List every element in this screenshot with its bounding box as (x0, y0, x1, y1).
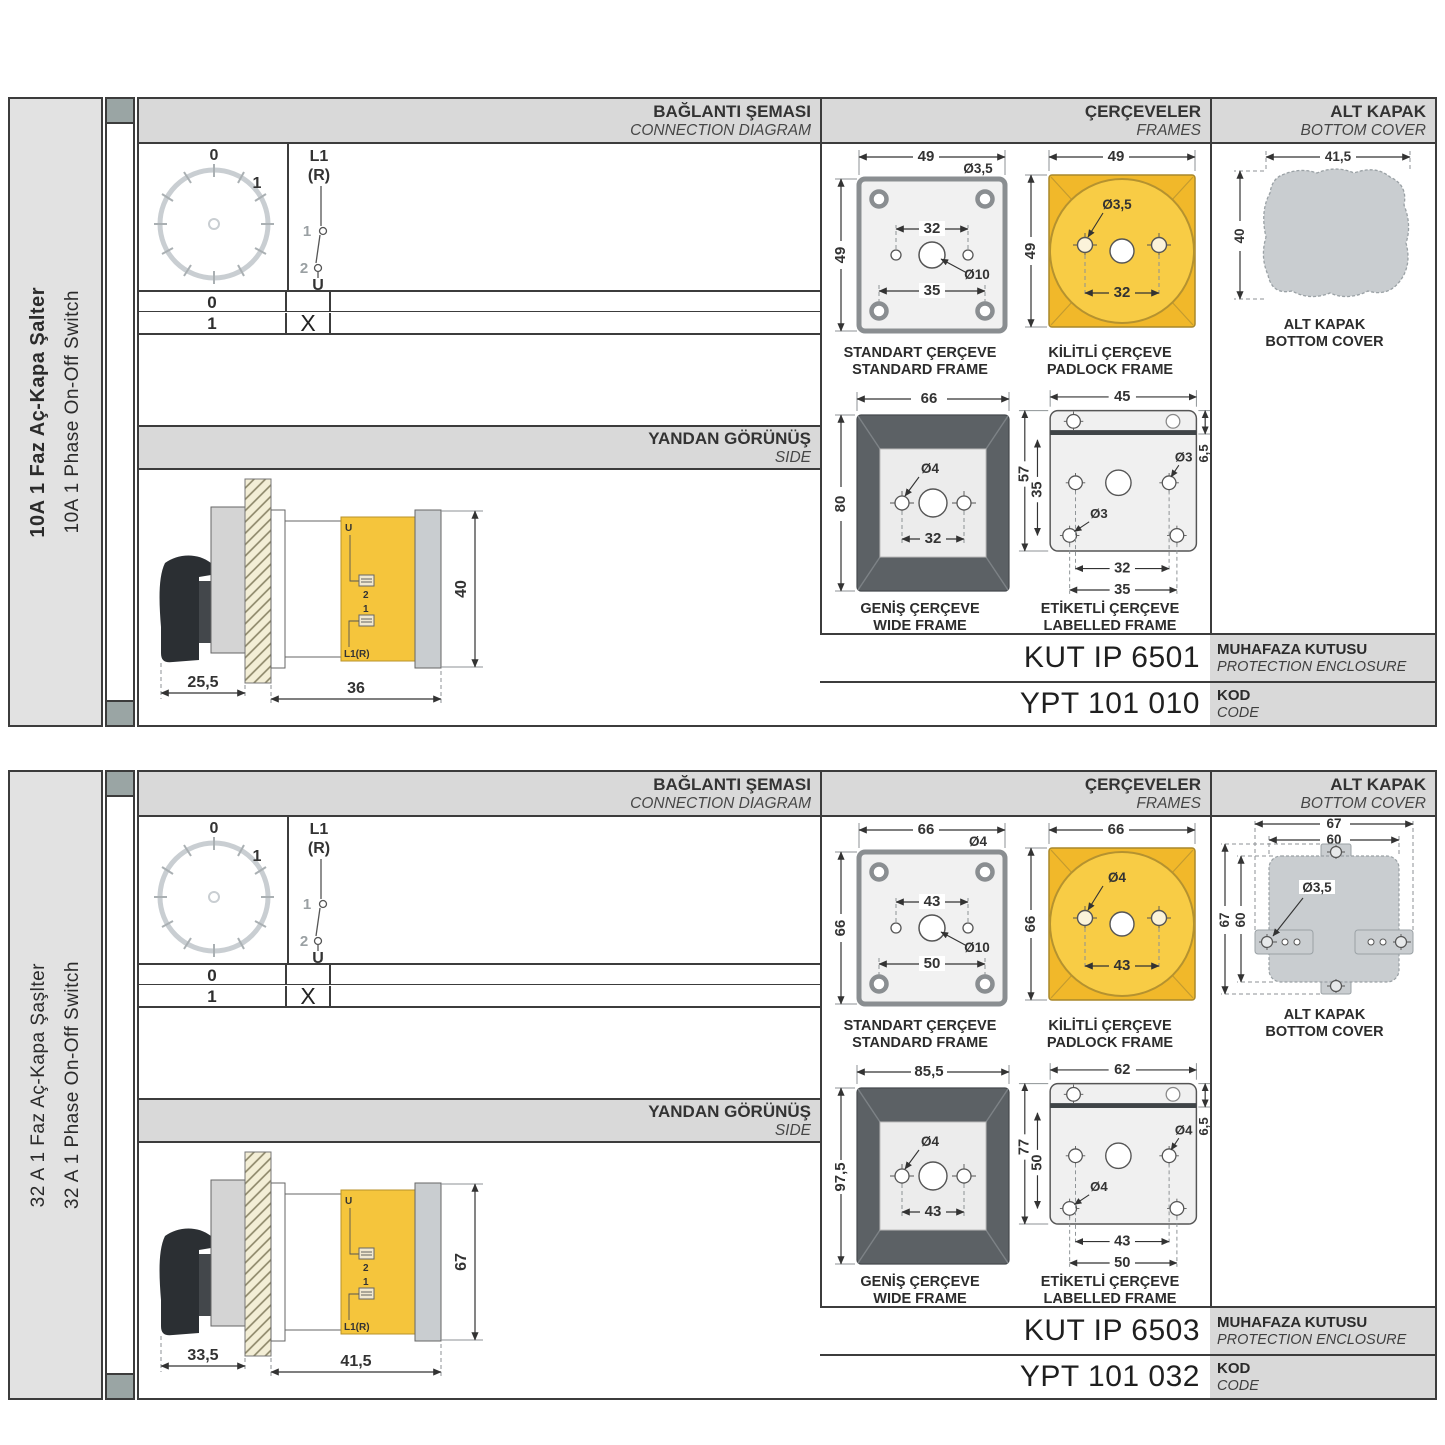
side-view-drawing: U 2 1 L1(R) 67 33,5 41,5 (153, 1150, 633, 1382)
caption-wide-tr: GENİŞ ÇERÇEVE (820, 1274, 1020, 1291)
wide-frame-drawing: 85,5 97,5 Ø4 43 (831, 1060, 1016, 1272)
body-label-l1r: L1(R) (344, 649, 370, 660)
dim-hole-spacing: 32 (925, 530, 942, 547)
contact-mark: X (287, 986, 331, 1006)
catalog-page: 10A 1 Faz Aç-Kapa Şalter 10A 1 Phase On-… (0, 0, 1445, 1445)
caption-padlock-frame: KİLİTLİ ÇERÇEVE PADLOCK FRAME (1010, 345, 1210, 379)
switch-body-yellow (341, 517, 415, 661)
dim-frame-height: 97,5 (832, 1162, 849, 1191)
caption-labelled-frame: ETİKETLİ ÇERÇEVE LABELLED FRAME (1010, 601, 1210, 635)
header-bottom-cover: ALT KAPAK BOTTOM COVER (1210, 99, 1435, 144)
header-connection-en: CONNECTION DIAGRAM (630, 122, 811, 140)
state-label-1: 1 (139, 313, 287, 333)
caption-cover-tr: ALT KAPAK (1220, 1007, 1430, 1024)
dim-hole-spacing: 32 (1114, 284, 1131, 301)
front-plate (211, 507, 245, 653)
cover-shape (1269, 856, 1399, 982)
enclosure-label-en: PROTECTION ENCLOSURE (1217, 659, 1428, 676)
product-title-tr: 32 A 1 Faz Aç-Kapa Şaşlter (28, 963, 50, 1207)
dial-position-0: 0 (210, 820, 219, 837)
header-connection-en: CONNECTION DIAGRAM (630, 795, 811, 813)
dim-inner-height: 50 (1029, 1154, 1045, 1170)
terminal-r: (R) (308, 167, 330, 184)
header-connection-diagram: BAĞLANTI ŞEMASI CONNECTION DIAGRAM (139, 99, 820, 144)
header-bottom-cover: ALT KAPAK BOTTOM COVER (1210, 772, 1435, 817)
wide-frame-drawing: 66 80 Ø4 32 (831, 387, 1016, 599)
dial-position-1: 1 (253, 848, 262, 865)
state-label-0: 0 (139, 965, 287, 984)
dim-lower-spacing: 35 (924, 282, 941, 299)
dim-hole-right: Ø3 (1175, 449, 1193, 464)
switch-dial-diagram: 0 1 (141, 146, 287, 290)
panel-hatched (245, 1152, 271, 1356)
caption-standard-frame: STANDART ÇERÇEVE STANDARD FRAME (820, 345, 1020, 379)
code-label-cell: KOD CODE (1210, 681, 1435, 725)
header-frames: ÇERÇEVELER FRAMES (820, 772, 1210, 817)
product-title-en: 32 A 1 Phase On-Off Switch (62, 961, 84, 1209)
contact-1-label: 1 (303, 896, 311, 913)
bottom-cover-drawing: 41,5 40 (1220, 149, 1430, 311)
dim-frame-width: 66 (921, 390, 938, 407)
dim-frame-width: 45 (1114, 389, 1130, 405)
terminal-l1: L1 (310, 148, 329, 165)
caption-padlock-en: PADLOCK FRAME (1010, 362, 1210, 379)
code-label-tr: KOD (1217, 1360, 1428, 1378)
product-code: YPT 101 010 (820, 681, 1210, 725)
terminal-r: (R) (308, 840, 330, 857)
caption-padlock-frame: KİLİTLİ ÇERÇEVE PADLOCK FRAME (1010, 1018, 1210, 1052)
header-frames-en: FRAMES (1136, 795, 1201, 813)
caption-wide-tr: GENİŞ ÇERÇEVE (820, 601, 1020, 618)
header-frames: ÇERÇEVELER FRAMES (820, 99, 1210, 144)
bottom-cover-block: 67 60 67 60 (1212, 818, 1437, 1041)
dim-height: 40 (453, 580, 470, 598)
switch-dial-diagram: 0 1 (141, 819, 287, 963)
product-title-tr: 10A 1 Faz Aç-Kapa Şalter (27, 287, 50, 538)
panel-hatched (245, 479, 271, 683)
caption-wide-frame: GENİŞ ÇERÇEVE WIDE FRAME (820, 601, 1020, 635)
dim-lower-spacing: 35 (1114, 582, 1130, 598)
dim-inner-height: 35 (1029, 481, 1045, 497)
dim-center-hole: Ø10 (964, 267, 990, 282)
body-label-1: 1 (363, 1277, 369, 1288)
header-cover-tr: ALT KAPAK (1330, 775, 1426, 795)
header-frames-tr: ÇERÇEVELER (1085, 775, 1201, 795)
dim-center-hole: Ø10 (964, 940, 990, 955)
state-row-1: 1 X (139, 313, 820, 335)
caption-labelled-tr: ETİKETLİ ÇERÇEVE (1010, 1274, 1210, 1291)
enclosure-label-tr: MUHAFAZA KUTUSU (1217, 1314, 1428, 1332)
caption-bottom-cover: ALT KAPAK BOTTOM COVER (1220, 1007, 1430, 1041)
dim-corner-hole: Ø4 (969, 834, 988, 849)
dim-frame-width: 49 (918, 148, 935, 165)
caption-padlock-tr: KİLİTLİ ÇERÇEVE (1010, 1018, 1210, 1035)
spacer-column (105, 770, 135, 1400)
product-code: YPT 101 032 (820, 1354, 1210, 1398)
dim-hole-spacing: 32 (924, 220, 941, 237)
dim-handle-depth: 25,5 (187, 674, 218, 691)
dim-body-depth: 36 (347, 680, 365, 697)
caption-cover-tr: ALT KAPAK (1220, 317, 1430, 334)
dim-hole-spacing: 43 (924, 893, 941, 910)
dim-frame-height: 49 (1022, 243, 1039, 260)
contact-cell-0 (287, 292, 331, 311)
dim-strip-height: 6,5 (1196, 1117, 1211, 1135)
spacer-column (105, 97, 135, 727)
caption-standard-en: STANDARD FRAME (820, 1035, 1020, 1052)
code-label-tr: KOD (1217, 687, 1428, 705)
dim-hole-spacing: 43 (1114, 1233, 1130, 1249)
enclosure-label-cell: MUHAFAZA KUTUSU PROTECTION ENCLOSURE (1210, 1306, 1435, 1354)
header-connection-tr: BAĞLANTI ŞEMASI (653, 102, 811, 122)
header-side-en: SIDE (775, 1122, 811, 1140)
switch-contact-symbol: L1 (R) 1 2 U (289, 147, 369, 291)
header-side-view: YANDAN GÖRÜNÜŞ SIDE (139, 425, 820, 470)
header-connection-tr: BAĞLANTI ŞEMASI (653, 775, 811, 795)
contact-mark: X (287, 313, 331, 333)
dial-position-1: 1 (253, 175, 262, 192)
dim-hole-left: Ø4 (1090, 1179, 1108, 1194)
labelled-frame-drawing: 45 6,5 57 35 Ø3 (1017, 387, 1212, 599)
dim-corner-hole: Ø4 (1108, 870, 1127, 885)
body-label-1: 1 (363, 604, 369, 615)
end-cap (415, 510, 441, 668)
code-label-cell: KOD CODE (1210, 1354, 1435, 1398)
dim-hole-spacing: 32 (1114, 560, 1130, 576)
body-label-2: 2 (363, 590, 369, 601)
dim-body-depth: 41,5 (340, 1353, 371, 1370)
state-label-0: 0 (139, 292, 287, 311)
header-cover-en: BOTTOM COVER (1301, 795, 1426, 813)
spacer-cap-bottom (105, 700, 135, 727)
terminal-u: U (312, 950, 324, 964)
end-cap (415, 1183, 441, 1341)
dim-frame-width: 62 (1114, 1062, 1130, 1078)
dim-frame-height: 66 (1022, 916, 1039, 933)
dim-frame-width: 49 (1108, 148, 1125, 165)
labelled-frame-drawing: 62 6,5 77 50 Ø4 (1017, 1060, 1212, 1272)
dim-cover-height: 40 (1232, 228, 1247, 243)
caption-standard-tr: STANDART ÇERÇEVE (820, 1018, 1020, 1035)
dim-cover-outer-width: 67 (1326, 818, 1341, 831)
product-sidebar: 32 A 1 Faz Aç-Kapa Şaşlter 32 A 1 Phase … (8, 770, 103, 1400)
caption-standard-tr: STANDART ÇERÇEVE (820, 345, 1020, 362)
standard-frame-drawing: 66 Ø4 66 43 Ø10 50 (831, 818, 1016, 1016)
dim-handle-depth: 33,5 (187, 1347, 218, 1364)
padlock-frame-drawing: 49 49 Ø3,5 32 (1021, 145, 1206, 343)
bottom-cover-drawing: 67 60 67 60 (1217, 818, 1432, 1003)
contact-cell-0 (287, 965, 331, 984)
code-label-en: CODE (1217, 705, 1428, 722)
dim-corner-hole: Ø3,5 (963, 161, 993, 176)
dim-frame-height: 57 (1017, 466, 1033, 482)
dim-frame-height: 80 (832, 496, 849, 513)
state-row-0: 0 (139, 290, 820, 312)
body-label-2: 2 (363, 1263, 369, 1274)
contact-2-label: 2 (300, 260, 308, 277)
contact-2-label: 2 (300, 933, 308, 950)
caption-standard-en: STANDARD FRAME (820, 362, 1020, 379)
enclosure-label-tr: MUHAFAZA KUTUSU (1217, 641, 1428, 659)
terminal-u: U (312, 277, 324, 291)
caption-labelled-tr: ETİKETLİ ÇERÇEVE (1010, 601, 1210, 618)
dim-corner-hole: Ø3,5 (1102, 197, 1132, 212)
dim-cover-hole: Ø3,5 (1302, 880, 1332, 895)
dim-strip-height: 6,5 (1196, 444, 1211, 462)
dim-lower-spacing: 50 (1114, 1255, 1130, 1271)
caption-labelled-frame: ETİKETLİ ÇERÇEVE LABELLED FRAME (1010, 1274, 1210, 1308)
caption-bottom-cover: ALT KAPAK BOTTOM COVER (1220, 317, 1430, 351)
dim-lower-spacing: 50 (924, 955, 941, 972)
header-cover-tr: ALT KAPAK (1330, 102, 1426, 122)
switch-body-yellow (341, 1190, 415, 1334)
code-label-en: CODE (1217, 1378, 1428, 1395)
terminal-l1: L1 (310, 821, 329, 838)
dim-frame-height: 66 (832, 920, 849, 937)
spacer-cap-top (105, 97, 135, 124)
dim-frame-width: 85,5 (914, 1063, 943, 1080)
body-label-u: U (345, 523, 352, 534)
state-row-1: 1 X (139, 986, 820, 1008)
dim-hole-left: Ø3 (1090, 506, 1108, 521)
side-view-drawing: U 2 1 L1(R) 40 25,5 36 (153, 477, 633, 709)
header-side-tr: YANDAN GÖRÜNÜŞ (648, 1102, 811, 1122)
product-section-10a: 10A 1 Faz Aç-Kapa Şalter 10A 1 Phase On-… (8, 97, 1437, 727)
switch-contact-symbol: L1 (R) 1 2 U (289, 820, 369, 964)
header-cover-en: BOTTOM COVER (1301, 122, 1426, 140)
state-row-0: 0 (139, 963, 820, 985)
caption-padlock-en: PADLOCK FRAME (1010, 1035, 1210, 1052)
product-title-en: 10A 1 Phase On-Off Switch (62, 290, 84, 533)
enclosure-label-en: PROTECTION ENCLOSURE (1217, 1332, 1428, 1349)
enclosure-label-cell: MUHAFAZA KUTUSU PROTECTION ENCLOSURE (1210, 633, 1435, 681)
dim-hole-spacing: 43 (925, 1203, 942, 1220)
enclosure-code: KUT IP 6503 (820, 1306, 1210, 1354)
dim-hole: Ø4 (921, 1134, 940, 1149)
dial-position-0: 0 (210, 147, 219, 164)
padlock-frame-drawing: 66 66 Ø4 43 (1021, 818, 1206, 1016)
caption-padlock-tr: KİLİTLİ ÇERÇEVE (1010, 345, 1210, 362)
dim-frame-height: 77 (1017, 1139, 1033, 1155)
spacer-cap-top (105, 770, 135, 797)
header-side-en: SIDE (775, 449, 811, 467)
dim-frame-width: 66 (1108, 821, 1125, 838)
product-section-32a: 32 A 1 Faz Aç-Kapa Şaşlter 32 A 1 Phase … (8, 770, 1437, 1400)
header-connection-diagram: BAĞLANTI ŞEMASI CONNECTION DIAGRAM (139, 772, 820, 817)
header-frames-tr: ÇERÇEVELER (1085, 102, 1201, 122)
front-plate (211, 1180, 245, 1326)
dim-frame-width: 66 (918, 821, 935, 838)
cover-shape (1263, 169, 1408, 297)
caption-wide-frame: GENİŞ ÇERÇEVE WIDE FRAME (820, 1274, 1020, 1308)
header-side-tr: YANDAN GÖRÜNÜŞ (648, 429, 811, 449)
enclosure-code: KUT IP 6501 (820, 633, 1210, 681)
spacer-cap-bottom (105, 1373, 135, 1400)
dim-cover-inner-height: 60 (1233, 912, 1248, 927)
product-sidebar: 10A 1 Faz Aç-Kapa Şalter 10A 1 Phase On-… (8, 97, 103, 727)
body-label-u: U (345, 1196, 352, 1207)
bottom-cover-block: 41,5 40 ALT KAPAK BOTTOM COVER (1212, 149, 1437, 351)
header-frames-en: FRAMES (1136, 122, 1201, 140)
dim-hole: Ø4 (921, 461, 940, 476)
caption-standard-frame: STANDART ÇERÇEVE STANDARD FRAME (820, 1018, 1020, 1052)
dim-frame-height: 49 (832, 247, 849, 264)
header-side-view: YANDAN GÖRÜNÜŞ SIDE (139, 1098, 820, 1143)
dim-cover-outer-height: 67 (1217, 912, 1232, 927)
content-panel: BAĞLANTI ŞEMASI CONNECTION DIAGRAM ÇERÇE… (137, 770, 1437, 1400)
dim-cover-width: 41,5 (1324, 149, 1351, 164)
dim-hole-right: Ø4 (1175, 1122, 1193, 1137)
dim-hole-spacing: 43 (1114, 957, 1131, 974)
caption-cover-en: BOTTOM COVER (1220, 1024, 1430, 1041)
state-label-1: 1 (139, 986, 287, 1006)
contact-1-label: 1 (303, 223, 311, 240)
caption-cover-en: BOTTOM COVER (1220, 334, 1430, 351)
dim-height: 67 (453, 1253, 470, 1271)
standard-frame-drawing: 49 Ø3,5 49 32 Ø10 35 (831, 145, 1016, 343)
content-panel: BAĞLANTI ŞEMASI CONNECTION DIAGRAM ÇERÇE… (137, 97, 1437, 727)
body-label-l1r: L1(R) (344, 1322, 370, 1333)
